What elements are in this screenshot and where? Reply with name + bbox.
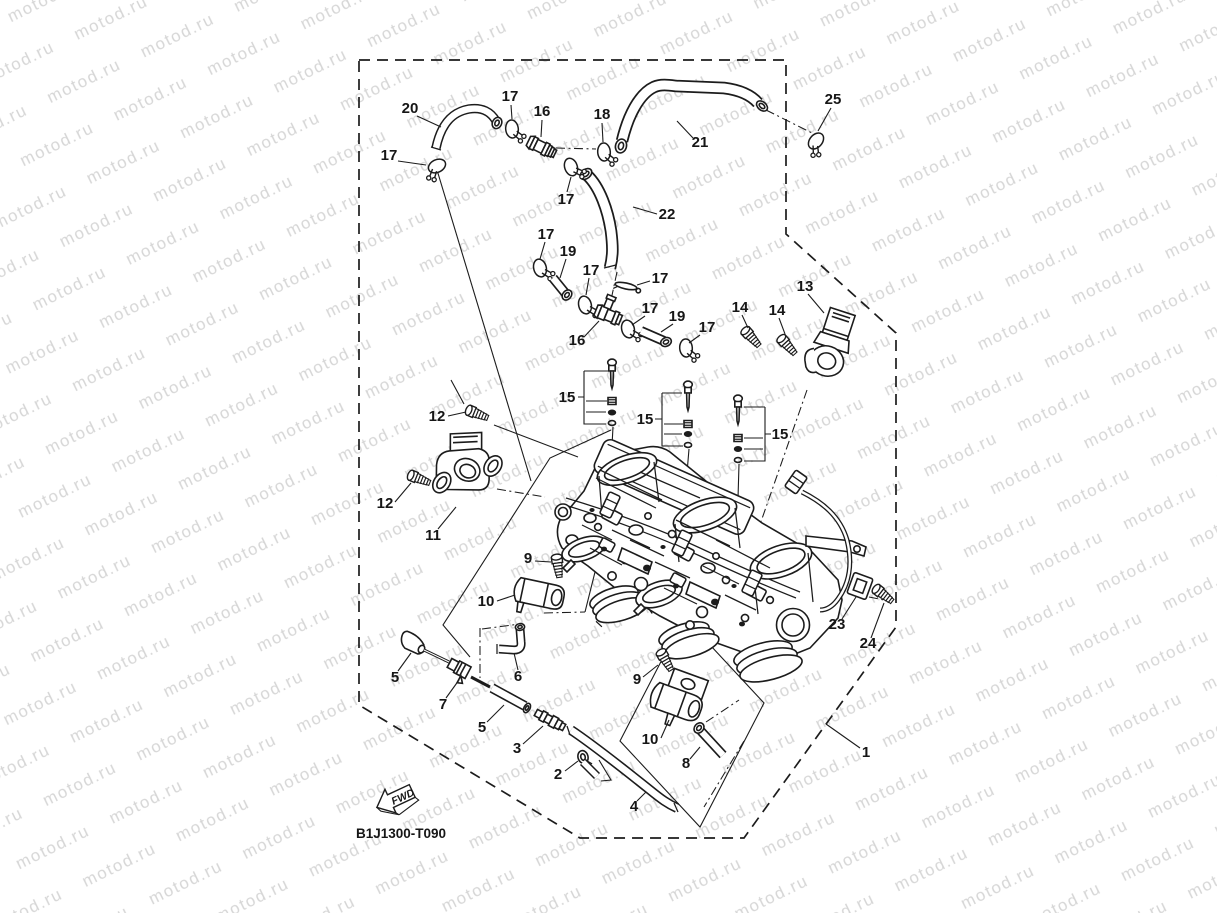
svg-text:17: 17: [558, 191, 575, 208]
svg-text:17: 17: [502, 88, 519, 105]
svg-text:B1J1300-T090: B1J1300-T090: [356, 826, 446, 841]
svg-text:3: 3: [513, 740, 521, 757]
svg-text:17: 17: [538, 226, 555, 243]
svg-text:17: 17: [381, 147, 398, 164]
svg-text:15: 15: [637, 411, 654, 428]
svg-text:21: 21: [692, 134, 709, 151]
svg-text:8: 8: [682, 755, 690, 772]
svg-text:9: 9: [633, 671, 641, 688]
svg-text:22: 22: [659, 206, 676, 223]
svg-text:19: 19: [560, 243, 577, 260]
svg-text:14: 14: [769, 302, 786, 319]
svg-text:24: 24: [860, 635, 877, 652]
svg-text:12: 12: [377, 495, 394, 512]
svg-text:16: 16: [534, 103, 551, 120]
svg-text:13: 13: [797, 278, 814, 295]
svg-text:7: 7: [439, 696, 447, 713]
svg-text:9: 9: [524, 550, 532, 567]
svg-text:12: 12: [429, 408, 446, 425]
svg-text:11: 11: [425, 527, 441, 544]
svg-text:17: 17: [642, 300, 659, 317]
svg-text:10: 10: [642, 731, 659, 748]
svg-text:6: 6: [514, 668, 522, 685]
svg-text:14: 14: [732, 299, 749, 316]
svg-text:15: 15: [559, 389, 576, 406]
svg-text:20: 20: [402, 100, 419, 117]
svg-text:16: 16: [569, 332, 586, 349]
svg-text:17: 17: [652, 270, 669, 287]
svg-text:10: 10: [478, 593, 495, 610]
svg-text:18: 18: [594, 106, 611, 123]
svg-text:25: 25: [825, 91, 842, 108]
svg-text:2: 2: [554, 766, 562, 783]
svg-text:5: 5: [391, 669, 399, 686]
svg-text:15: 15: [772, 426, 789, 443]
svg-text:19: 19: [669, 308, 686, 325]
svg-text:5: 5: [478, 719, 486, 736]
svg-text:17: 17: [699, 319, 716, 336]
svg-text:17: 17: [583, 262, 600, 279]
svg-text:1: 1: [862, 744, 870, 761]
